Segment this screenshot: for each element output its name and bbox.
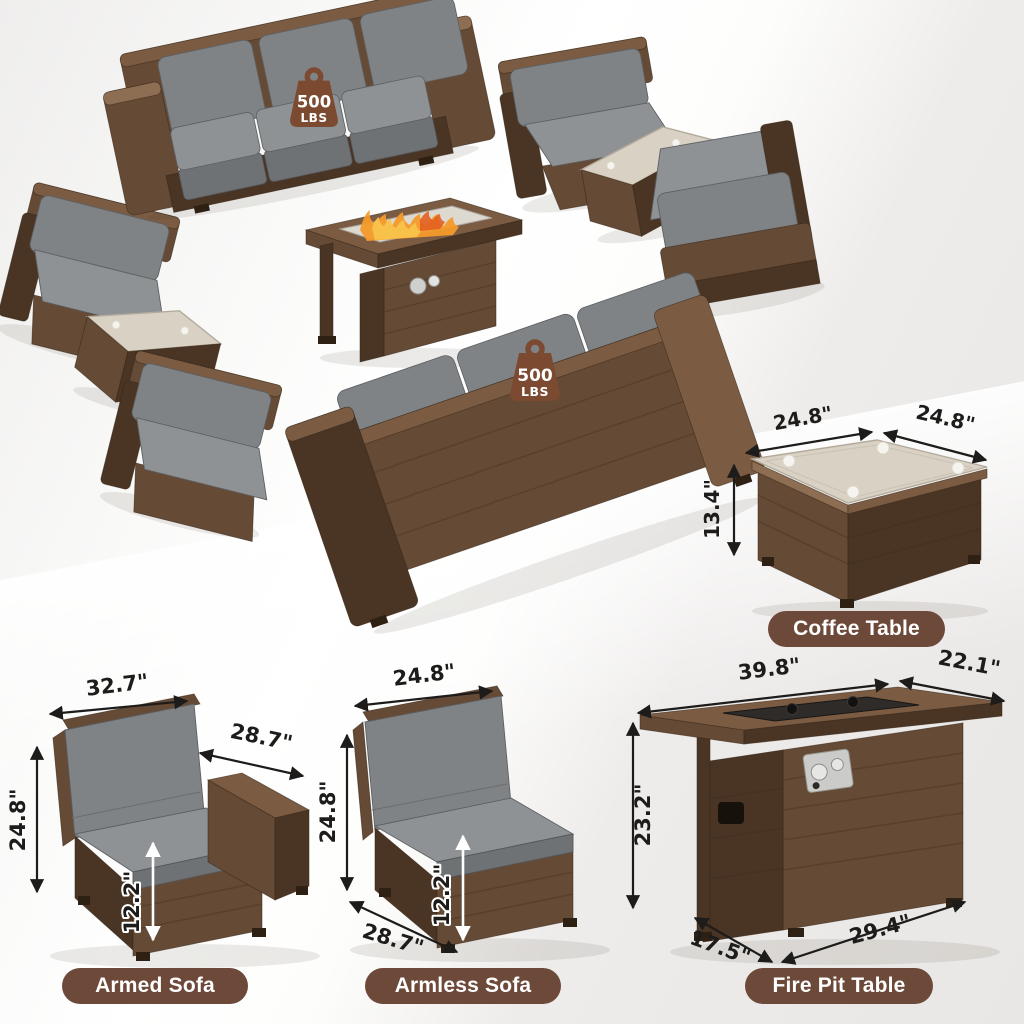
armed-sofa-label: Armed Sofa — [62, 968, 248, 1004]
armless-sofa-seat-height: 12.2" — [430, 864, 454, 927]
coffee-table-top-depth: 24.8" — [914, 400, 978, 437]
fire-pit-top-width: 39.8" — [737, 653, 802, 684]
coffee-table-height: 13.4" — [700, 479, 724, 539]
armed-sofa-height: 24.8" — [6, 789, 30, 852]
armed-sofa-back-width: 32.7" — [85, 669, 150, 700]
armless-sofa-height: 24.8" — [316, 781, 340, 844]
weight-capacity-unit: LBS — [521, 384, 549, 399]
coffee-table-panel: 24.8" 24.8" 13.4" Coffee Table — [690, 405, 1024, 655]
armed-sofa-seat-height: 12.2" — [120, 871, 144, 934]
fire-pit-top-depth: 22.1" — [936, 645, 1002, 681]
corner-chair-set-left — [0, 188, 304, 538]
armless-sofa-label: Armless Sofa — [365, 968, 561, 1004]
product-dimension-sheet: 500 LBS 500 LBS — [0, 0, 1024, 1024]
weight-capacity-value: 500 — [297, 93, 331, 112]
coffee-table-top-width: 24.8" — [771, 401, 834, 435]
weight-capacity-unit: LBS — [300, 111, 327, 125]
dimension-arrow — [200, 753, 303, 776]
armed-sofa-panel: 32.7" 28.7" 24.8" 12.2" Armed Sofa — [10, 640, 350, 1012]
burner-control-panel — [803, 749, 854, 793]
fire-pit-table-illustration — [640, 687, 1002, 965]
fire-pit-table-label: Fire Pit Table — [745, 968, 933, 1004]
armless-sofa-panel: 24.8" 24.8" 12.2" 28.7" Armless Sofa — [315, 640, 635, 1012]
armed-sofa-depth: 28.7" — [228, 719, 294, 756]
fire-pit-table-panel: 39.8" 22.1" 23.2" 17.5" 29.4" Fire Pit T… — [620, 640, 1024, 1012]
weight-capacity-badge: 500 LBS — [505, 336, 565, 406]
weight-capacity-badge: 500 LBS — [285, 64, 343, 132]
weight-capacity-value: 500 — [517, 366, 553, 386]
fire-pit-height: 23.2" — [631, 784, 655, 847]
coffee-table-illustration — [752, 440, 988, 621]
armless-sofa-width: 24.8" — [392, 659, 457, 690]
side-vent-hole — [718, 802, 744, 824]
